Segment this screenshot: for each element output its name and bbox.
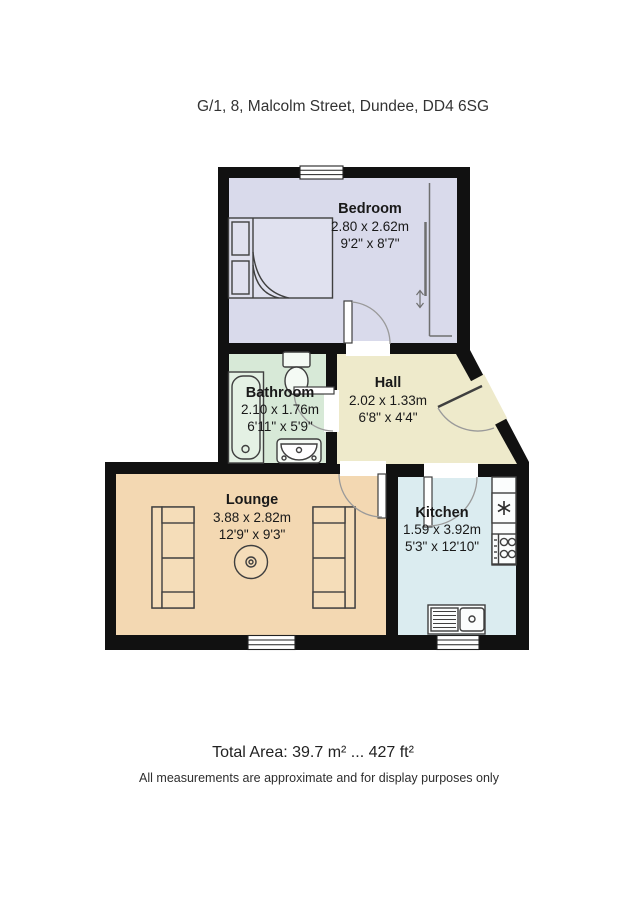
total-area: Total Area: 39.7 m² ... 427 ft² <box>212 744 415 761</box>
bedroom-window <box>300 166 343 179</box>
bedroom-dim-metric: 2.80 x 2.62m <box>331 219 409 234</box>
page-title: G/1, 8, Malcolm Street, Dundee, DD4 6SG <box>197 98 489 115</box>
bedroom-door-opening <box>346 341 390 356</box>
lounge-dim-metric: 3.88 x 2.82m <box>213 510 291 525</box>
bathroom-door-opening <box>324 390 339 432</box>
kitchen-door-opening <box>424 463 478 478</box>
kitchen-dim-metric: 1.59 x 3.92m <box>403 522 481 537</box>
lounge-window <box>248 636 295 650</box>
hall-dim-metric: 2.02 x 1.33m <box>349 393 427 408</box>
bathroom-label: Bathroom 2.10 x 1.76m 6'11" x 5'9" <box>241 385 319 434</box>
bedroom-label: Bedroom 2.80 x 2.62m 9'2" x 8'7" <box>331 201 409 251</box>
floorplan: G/1, 8, Malcolm Street, Dundee, DD4 6SG <box>0 0 632 900</box>
lounge-name: Lounge <box>226 492 278 508</box>
basin-icon <box>277 439 321 463</box>
fridge-icon <box>492 493 516 523</box>
lounge-dim-imperial: 12'9" x 9'3" <box>219 527 286 542</box>
sofa-icon-right <box>313 507 355 608</box>
sofa-icon-left <box>152 507 194 608</box>
bathroom-dim-metric: 2.10 x 1.76m <box>241 402 319 417</box>
disclaimer: All measurements are approximate and for… <box>139 771 500 785</box>
kitchen-window <box>437 636 479 650</box>
bathroom-name: Bathroom <box>246 385 314 401</box>
bedroom-name: Bedroom <box>338 201 402 217</box>
hob-icon <box>492 534 516 564</box>
kitchen-dim-imperial: 5'3" x 12'10" <box>405 539 479 554</box>
kitchen-sink-icon <box>428 605 485 634</box>
kitchen-name: Kitchen <box>415 505 468 521</box>
hall-dim-imperial: 6'8" x 4'4" <box>358 410 417 425</box>
bed-icon <box>229 218 333 298</box>
coffee-table-icon <box>235 546 268 579</box>
bedroom-dim-imperial: 9'2" x 8'7" <box>340 236 399 251</box>
bathroom-dim-imperial: 6'11" x 5'9" <box>247 419 313 434</box>
hall-name: Hall <box>375 375 402 391</box>
